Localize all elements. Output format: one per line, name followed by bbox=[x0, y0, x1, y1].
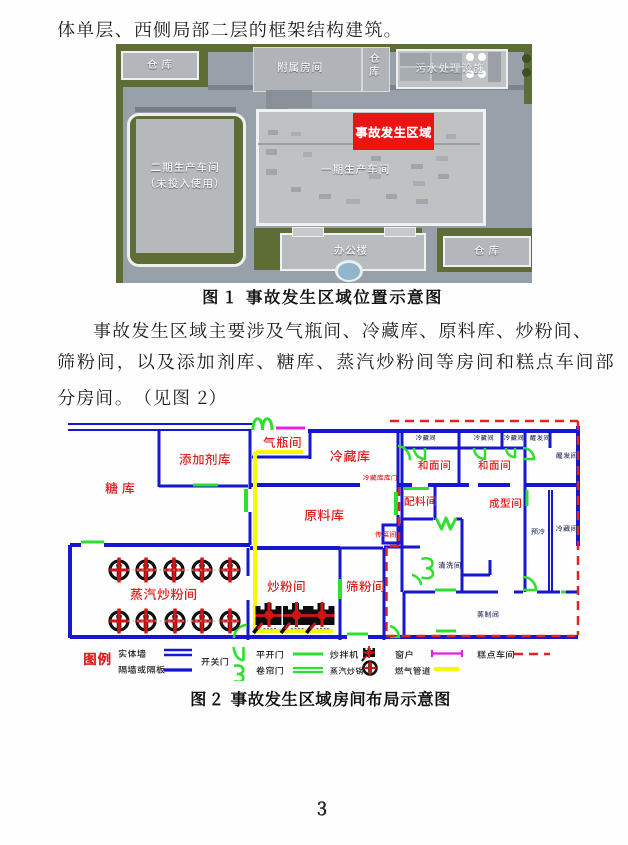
svg-text:蒸汽炒粉间: 蒸汽炒粉间 bbox=[130, 584, 198, 603]
svg-text:炒拌机: 炒拌机 bbox=[329, 648, 359, 661]
svg-text:图例: 图例 bbox=[83, 648, 112, 668]
svg-text:冷藏间: 冷藏间 bbox=[503, 433, 524, 442]
svg-text:醒发间: 醒发间 bbox=[530, 433, 550, 442]
svg-text:配料间: 配料间 bbox=[404, 494, 437, 509]
svg-text:气瓶间: 气瓶间 bbox=[263, 432, 302, 451]
svg-text:成型间: 成型间 bbox=[489, 496, 522, 511]
svg-text:蒸制间: 蒸制间 bbox=[477, 610, 500, 620]
svg-text:平开门: 平开门 bbox=[256, 648, 285, 661]
svg-text:原料库: 原料库 bbox=[304, 505, 345, 524]
svg-text:清洗间: 清洗间 bbox=[438, 560, 462, 571]
svg-text:冷藏库: 冷藏库 bbox=[330, 446, 371, 465]
svg-text:糕点车间: 糕点车间 bbox=[477, 648, 515, 661]
svg-text:筛粉间: 筛粉间 bbox=[346, 576, 385, 595]
svg-text:和面间: 和面间 bbox=[417, 458, 451, 473]
svg-text:传菜间: 传菜间 bbox=[375, 529, 397, 539]
svg-text:卷帘门: 卷帘门 bbox=[256, 664, 285, 677]
svg-text:蒸汽炒锅: 蒸汽炒锅 bbox=[330, 666, 364, 677]
svg-text:窗户: 窗户 bbox=[395, 648, 414, 661]
svg-text:糖 库: 糖 库 bbox=[105, 478, 135, 497]
svg-text:冷藏间: 冷藏间 bbox=[415, 433, 436, 442]
svg-text:实体墙: 实体墙 bbox=[118, 647, 147, 660]
svg-text:燃气管道: 燃气管道 bbox=[394, 665, 431, 677]
svg-text:隔墙或隔板: 隔墙或隔板 bbox=[118, 663, 166, 676]
svg-text:炒粉间: 炒粉间 bbox=[267, 576, 306, 595]
svg-text:和面间: 和面间 bbox=[477, 458, 511, 473]
svg-text:添加剂库: 添加剂库 bbox=[179, 449, 231, 468]
svg-text:醒发间: 醒发间 bbox=[556, 450, 578, 460]
svg-text:开关门: 开关门 bbox=[201, 655, 230, 668]
svg-text:预冷: 预冷 bbox=[531, 526, 546, 536]
svg-text:冷藏间: 冷藏间 bbox=[556, 523, 578, 533]
svg-text:冷藏间: 冷藏间 bbox=[473, 433, 494, 442]
svg-text:冷藏库库门: 冷藏库库门 bbox=[363, 472, 398, 482]
